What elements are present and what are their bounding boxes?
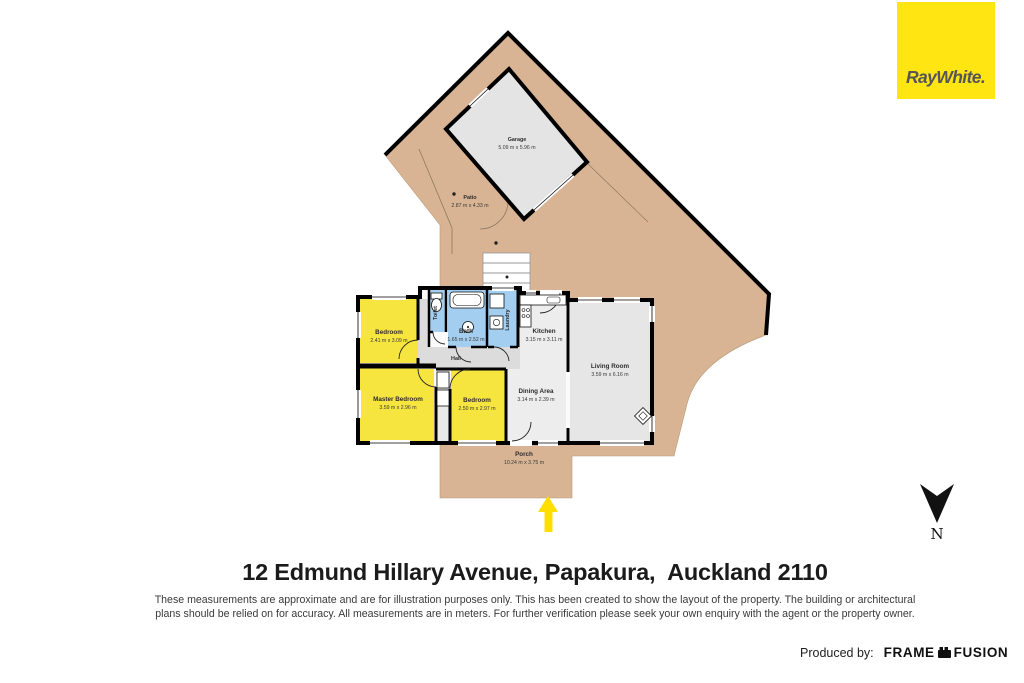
room-dims-patio: 2.87 m x 4.33 m: [451, 203, 488, 209]
room-label-bath: Bath: [459, 328, 473, 335]
room-label-master: Master Bedroom: [373, 396, 423, 403]
room-label-living: Living Room: [591, 363, 630, 370]
disclaimer-line-2: plans should be relied on for accuracy. …: [40, 608, 1024, 622]
room-label-hall: Hall: [451, 356, 461, 362]
entry-arrow-icon: [538, 496, 558, 532]
room-label-garage: Garage: [508, 137, 527, 143]
kitchen-counter-icon: [520, 295, 566, 305]
room-dims-bath: 1.65 m x 2.52 m: [447, 337, 484, 343]
room-label-bedroom1: Bedroom: [375, 329, 403, 336]
laundry-tub-icon: [490, 316, 503, 329]
room-label-laundry: Laundry: [505, 309, 511, 330]
deck-post-dot: [452, 192, 455, 195]
north-label: N: [930, 525, 943, 543]
wardrobe-icon: [437, 372, 449, 388]
bedroom2-floor: [451, 369, 505, 441]
raywhite-logo-text: RayWhite.: [906, 67, 985, 88]
room-dims-porch: 10.24 m x 3.75 m: [504, 460, 544, 466]
footer: Produced by: FRAME FUSION: [800, 645, 1008, 660]
room-label-patio: Patio: [463, 195, 477, 201]
raywhite-logo: RayWhite.: [897, 2, 995, 99]
room-dims-living: 3.59 m x 6.16 m: [591, 372, 628, 378]
room-dims-kitchen: 3.15 m x 3.11 m: [526, 337, 563, 343]
disclaimer: These measurements are approximate and a…: [40, 594, 1024, 621]
wardrobe-icon: [437, 390, 449, 406]
washing-machine-icon: [490, 294, 504, 308]
framefusion-logo-icon: [938, 647, 951, 658]
framefusion-logo: FRAME FUSION: [884, 645, 1009, 660]
room-dims-master: 3.59 m x 2.96 m: [379, 405, 416, 411]
deck-post-dot: [494, 241, 497, 244]
room-label-dining: Dining Area: [518, 388, 554, 395]
north-arrow-icon: [920, 484, 954, 523]
dining-floor: [507, 368, 566, 441]
room-dims-garage: 5.09 m x 5.96 m: [498, 145, 535, 151]
room-label-porch: Porch: [515, 451, 533, 458]
room-label-bedroom2: Bedroom: [463, 397, 491, 404]
north-compass: N: [920, 484, 954, 543]
framefusion-brand-fusion: FUSION: [954, 645, 1009, 660]
produced-by-label: Produced by:: [800, 646, 874, 660]
framefusion-brand-frame: FRAME: [884, 645, 935, 660]
room-label-toilet: Toilet: [433, 306, 439, 320]
room-dims-bedroom1: 2.41 m x 3.09 m: [370, 338, 407, 344]
room-dims-bedroom2: 2.50 m x 2.97 m: [458, 406, 495, 412]
room-dims-dining: 3.14 m x 2.39 m: [517, 397, 554, 403]
page-title: 12 Edmund Hillary Avenue, Papakura, Auck…: [40, 559, 1024, 586]
room-label-kitchen: Kitchen: [532, 328, 555, 335]
disclaimer-line-1: These measurements are approximate and a…: [40, 594, 1024, 608]
